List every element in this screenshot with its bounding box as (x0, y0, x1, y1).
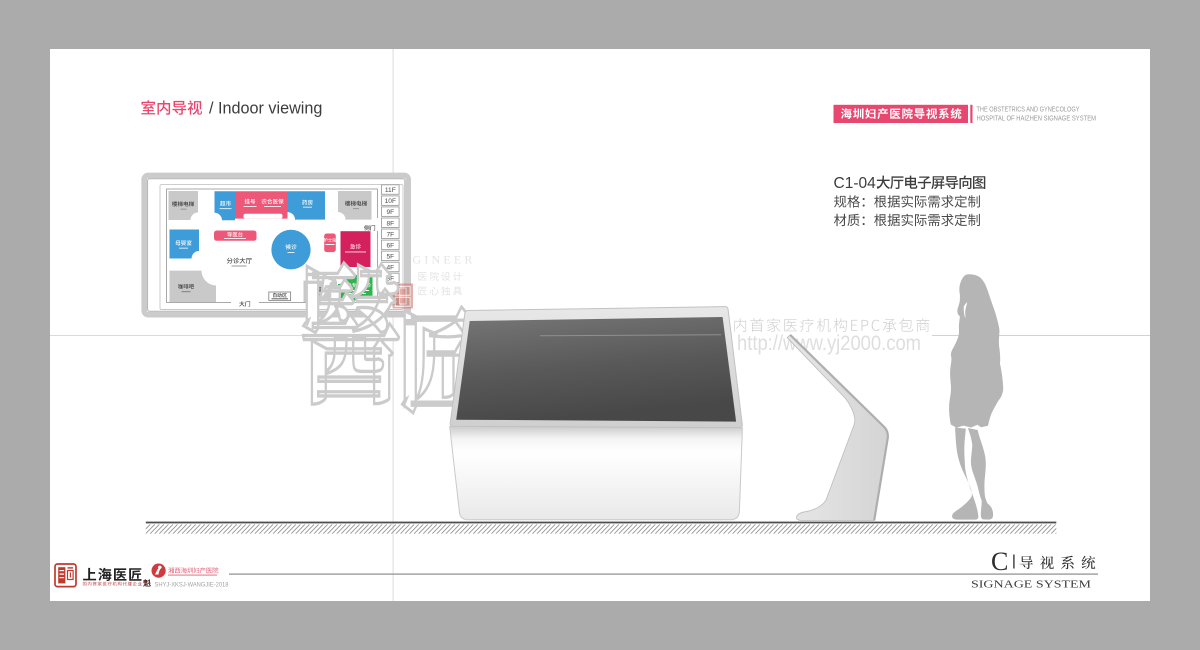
svg-text:9F: 9F (386, 209, 394, 216)
svg-text:C: C (991, 547, 1008, 576)
svg-text:HOSPITAL OF HAIZHEN SIGNAGE SY: HOSPITAL OF HAIZHEN SIGNAGE SYSTEM (977, 113, 1097, 122)
svg-text:/ Indoor viewing: / Indoor viewing (209, 100, 322, 118)
svg-text:http://www.yj2000.com: http://www.yj2000.com (737, 332, 921, 355)
svg-text:SIGNAGE SYSTEM: SIGNAGE SYSTEM (971, 579, 1091, 591)
svg-text:8F: 8F (386, 220, 394, 227)
svg-text:10F: 10F (385, 198, 396, 205)
svg-text:6F: 6F (386, 242, 394, 249)
svg-text:7F: 7F (386, 231, 394, 238)
svg-text:C1-04.: C1-04. (834, 175, 881, 192)
svg-text:THE OBSTETRICS AND GYNECOLOGY: THE OBSTETRICS AND GYNECOLOGY (977, 105, 1080, 114)
svg-text:5F: 5F (386, 253, 394, 260)
svg-text:SHYJ-XKSJ-WANGJIE-2018: SHYJ-XKSJ-WANGJIE-2018 (155, 582, 230, 589)
svg-text:11F: 11F (385, 187, 396, 194)
